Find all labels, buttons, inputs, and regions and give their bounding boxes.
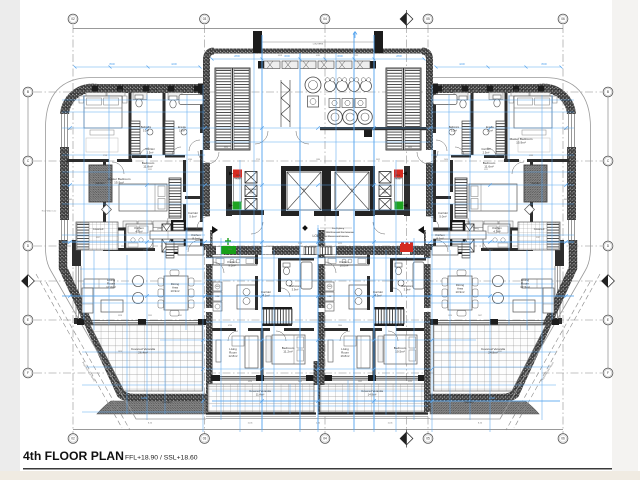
svg-text:05: 05: [426, 17, 430, 21]
svg-text:FFL+18.90 / SSL+18.60: FFL+18.90 / SSL+18.60: [125, 455, 198, 462]
svg-text:B: B: [27, 90, 29, 94]
svg-text:3500: 3500: [541, 62, 547, 66]
svg-text:Garden: Garden: [464, 400, 474, 404]
svg-text:3600: 3600: [337, 54, 343, 58]
svg-text:10.5m²: 10.5m²: [395, 350, 405, 354]
svg-text:9.5m²: 9.5m²: [228, 264, 235, 268]
svg-text:RISER: RISER: [382, 193, 388, 195]
svg-text:2860: 2860: [338, 325, 342, 327]
svg-text:3328: 3328: [118, 315, 122, 317]
svg-text:B: B: [607, 90, 609, 94]
svg-text:1200: 1200: [489, 396, 495, 400]
svg-text:2251: 2251: [354, 55, 358, 57]
svg-text:05: 05: [426, 437, 430, 441]
svg-text:4997: 4997: [96, 237, 100, 239]
svg-text:1986: 1986: [316, 159, 320, 161]
svg-text:3063: 3063: [248, 249, 252, 251]
svg-text:3.9m²: 3.9m²: [292, 288, 299, 292]
svg-text:3.1m²: 3.1m²: [487, 130, 493, 133]
svg-text:2330: 2330: [228, 249, 232, 251]
svg-text:2922: 2922: [564, 129, 568, 131]
svg-text:F: F: [27, 371, 29, 375]
svg-text:11.6m²: 11.6m²: [484, 165, 493, 169]
svg-text:1862: 1862: [388, 249, 392, 251]
svg-text:E: E: [27, 318, 29, 322]
svg-text:2454: 2454: [444, 159, 448, 161]
svg-text:1800: 1800: [86, 90, 90, 92]
svg-text:06: 06: [561, 437, 565, 441]
svg-text:4388: 4388: [529, 155, 533, 157]
svg-text:4200: 4200: [459, 62, 465, 66]
svg-text:12.8m²: 12.8m²: [229, 354, 238, 358]
svg-text:3999: 3999: [188, 90, 192, 92]
svg-text:2595: 2595: [148, 315, 152, 317]
svg-text:Corridor: Corridor: [481, 147, 491, 151]
svg-text:2533: 2533: [118, 90, 122, 92]
svg-text:4264: 4264: [188, 159, 192, 161]
svg-text:D/W: D/W: [328, 296, 332, 298]
svg-text:8.1m²: 8.1m²: [436, 237, 443, 241]
svg-text:Pipe Sleeves and Intercom: Pipe Sleeves and Intercom: [323, 235, 349, 238]
svg-text:03: 03: [203, 17, 207, 21]
svg-text:04: 04: [323, 17, 327, 21]
svg-text:2.5m²: 2.5m²: [147, 151, 154, 155]
svg-text:4653: 4653: [408, 147, 412, 149]
svg-text:5.1m²: 5.1m²: [143, 130, 149, 133]
svg-text:Covered: Covered: [93, 227, 104, 231]
svg-text:5121: 5121: [484, 169, 488, 171]
svg-text:3390: 3390: [546, 90, 550, 92]
svg-text:3858: 3858: [118, 351, 122, 353]
svg-text:LIFT: LIFT: [302, 189, 307, 191]
svg-text:4326: 4326: [248, 381, 252, 383]
svg-text:16.8m²: 16.8m²: [341, 354, 350, 358]
svg-text:3593: 3593: [398, 325, 402, 327]
svg-text:Ensuite: Ensuite: [486, 126, 495, 129]
svg-text:HOSE: HOSE: [235, 179, 241, 181]
svg-text:4794: 4794: [228, 325, 232, 327]
svg-text:Wet Riser with Fire Intercom: Wet Riser with Fire Intercom: [326, 231, 354, 234]
svg-text:15.9m²: 15.9m²: [114, 181, 124, 185]
svg-text:RISER: RISER: [248, 193, 254, 195]
svg-text:4529: 4529: [338, 243, 342, 245]
svg-text:Bathroom: Bathroom: [141, 126, 151, 129]
svg-text:LOUVERS: LOUVERS: [313, 44, 324, 46]
svg-text:Rear Wider Line: Rear Wider Line: [42, 211, 57, 213]
svg-text:02: 02: [71, 437, 75, 441]
svg-text:10.9m²: 10.9m²: [171, 289, 180, 293]
svg-text:2798: 2798: [103, 155, 107, 157]
svg-text:3920: 3920: [224, 147, 228, 149]
svg-text:2127: 2127: [288, 325, 292, 327]
svg-text:5059: 5059: [298, 381, 302, 383]
svg-text:1924: 1924: [448, 315, 452, 317]
svg-text:Bathroom: Bathroom: [289, 284, 300, 288]
svg-text:Covered: Covered: [534, 227, 545, 231]
svg-text:11.4m²: 11.4m²: [256, 393, 265, 397]
svg-text:Ensuite: Ensuite: [178, 126, 187, 129]
svg-text:04: 04: [323, 437, 327, 441]
svg-text:17.0m²: 17.0m²: [106, 285, 116, 289]
svg-text:4918: 4918: [278, 55, 282, 57]
svg-text:Garden: Garden: [531, 181, 541, 185]
svg-text:F: F: [607, 371, 609, 375]
svg-text:2719: 2719: [256, 159, 260, 161]
svg-text:3452: 3452: [376, 159, 380, 161]
svg-text:4061: 4061: [178, 315, 182, 317]
svg-text:3500: 3500: [109, 62, 115, 66]
svg-text:WM: WM: [216, 286, 220, 288]
svg-text:11.8m²: 11.8m²: [143, 165, 152, 169]
svg-text:1200: 1200: [141, 396, 147, 400]
svg-text:4th FLOOR PLAN: 4th FLOOR PLAN: [23, 449, 124, 463]
svg-text:3125: 3125: [408, 381, 412, 383]
svg-text:26.4m²: 26.4m²: [138, 351, 148, 355]
svg-text:3796: 3796: [298, 243, 302, 245]
svg-text:3531: 3531: [148, 169, 152, 171]
svg-text:8.1m²: 8.1m²: [192, 237, 199, 241]
svg-text:2392: 2392: [358, 381, 362, 383]
svg-text:Fire Fighting: Fire Fighting: [332, 227, 345, 230]
svg-text:10.0m²: 10.0m²: [340, 264, 349, 268]
svg-text:3.0m²: 3.0m²: [404, 288, 411, 292]
svg-text:LIFT: LIFT: [350, 189, 355, 191]
svg-text:5.1m²: 5.1m²: [451, 130, 457, 133]
svg-text:4.1m²: 4.1m²: [262, 294, 269, 298]
svg-text:HOSE: HOSE: [395, 179, 401, 181]
svg-text:2065: 2065: [68, 199, 72, 201]
svg-text:4123: 4123: [514, 90, 518, 92]
svg-text:3600: 3600: [284, 54, 290, 58]
svg-text:Bathroom: Bathroom: [449, 126, 459, 129]
svg-text:5.6m²: 5.6m²: [189, 215, 196, 219]
svg-text:3.1m²: 3.1m²: [179, 130, 185, 133]
svg-text:4.7m²: 4.7m²: [493, 230, 500, 234]
svg-text:4200: 4200: [171, 62, 177, 66]
svg-text:WM: WM: [328, 286, 332, 288]
svg-text:17.5m²: 17.5m²: [520, 285, 530, 289]
svg-text:06: 06: [561, 17, 565, 21]
svg-text:02: 02: [71, 17, 75, 21]
svg-text:2.5m²: 2.5m²: [483, 151, 490, 155]
svg-text:4732: 4732: [68, 129, 72, 131]
svg-text:2189: 2189: [444, 90, 448, 92]
svg-text:D/W: D/W: [216, 296, 220, 298]
svg-text:ELECTRICAL: ELECTRICAL: [379, 188, 390, 191]
svg-text:E: E: [607, 318, 609, 322]
svg-text:4856: 4856: [474, 90, 478, 92]
svg-text:14.9m²: 14.9m²: [368, 393, 377, 397]
svg-text:10.9m²: 10.9m²: [456, 290, 465, 294]
svg-text:4591: 4591: [498, 351, 502, 353]
svg-text:2800: 2800: [396, 54, 402, 58]
svg-text:03: 03: [203, 437, 207, 441]
svg-text:Corridor: Corridor: [145, 147, 155, 151]
svg-text:Garden: Garden: [95, 181, 105, 185]
svg-text:Garden: Garden: [162, 400, 172, 404]
svg-text:5.0m²: 5.0m²: [439, 215, 446, 219]
svg-text:2657: 2657: [478, 315, 482, 317]
svg-text:2800: 2800: [234, 54, 240, 58]
svg-text:ELECTRICAL: ELECTRICAL: [245, 188, 256, 191]
svg-text:24.8m²: 24.8m²: [488, 351, 498, 355]
svg-text:Bathroom: Bathroom: [401, 284, 412, 288]
svg-text:4.3m²: 4.3m²: [374, 294, 381, 298]
svg-text:4.7m²: 4.7m²: [135, 230, 142, 234]
svg-text:3266: 3266: [158, 90, 162, 92]
svg-text:4185: 4185: [316, 55, 320, 57]
svg-text:3187: 3187: [536, 237, 540, 239]
svg-text:15.9m²: 15.9m²: [516, 141, 526, 145]
svg-text:3655: 3655: [564, 199, 568, 201]
svg-text:11.2m²: 11.2m²: [283, 350, 292, 354]
